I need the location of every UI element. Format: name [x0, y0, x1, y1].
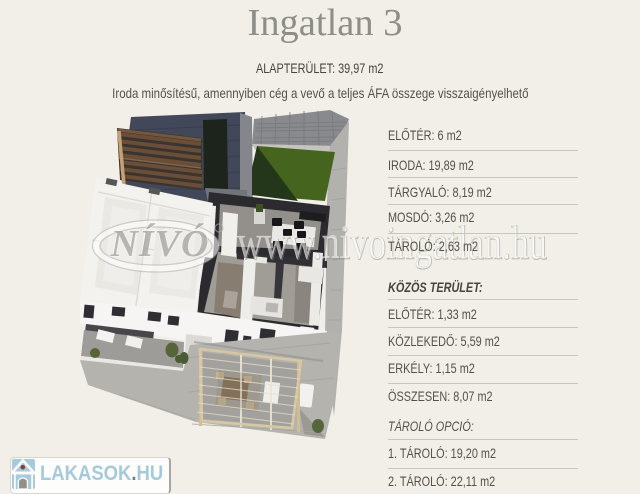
svg-text:NÍVÓ: NÍVÓ — [109, 223, 209, 265]
